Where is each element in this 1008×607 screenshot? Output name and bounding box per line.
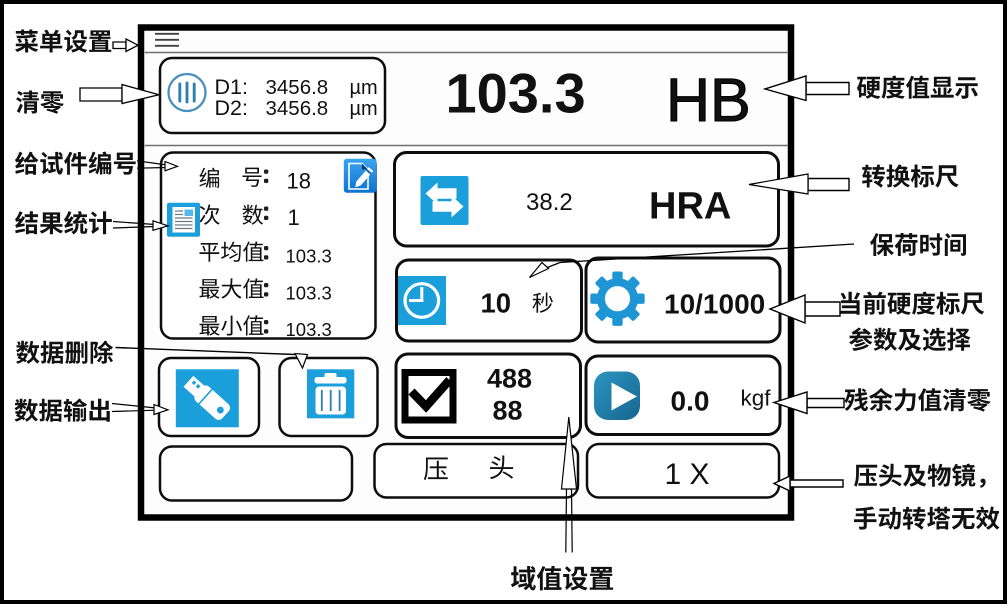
svg-text:10/1000: 10/1000 (664, 289, 765, 320)
svg-text:488: 488 (487, 364, 532, 394)
svg-text:1 X: 1 X (665, 458, 710, 491)
svg-text:103.3: 103.3 (286, 245, 332, 266)
svg-text:38.2: 38.2 (526, 189, 573, 216)
svg-text:103.3: 103.3 (446, 62, 586, 125)
svg-text:1: 1 (288, 205, 300, 230)
svg-text:µm: µm (350, 77, 378, 99)
svg-text:kgf: kgf (741, 386, 772, 411)
svg-text:88: 88 (493, 396, 523, 426)
svg-text:3456.8: 3456.8 (266, 76, 329, 99)
svg-text:D1:: D1: (215, 75, 248, 99)
svg-text:3456.8: 3456.8 (266, 97, 329, 120)
svg-text:HRA: HRA (649, 186, 731, 228)
svg-text:HB: HB (666, 66, 751, 134)
svg-text:10: 10 (481, 288, 512, 319)
svg-text:D2:: D2: (215, 96, 248, 120)
svg-text:103.3: 103.3 (286, 282, 332, 303)
svg-text:0.0: 0.0 (671, 386, 710, 417)
svg-text:18: 18 (287, 169, 311, 194)
svg-text:µm: µm (350, 98, 378, 120)
svg-text:103.3: 103.3 (286, 319, 332, 340)
